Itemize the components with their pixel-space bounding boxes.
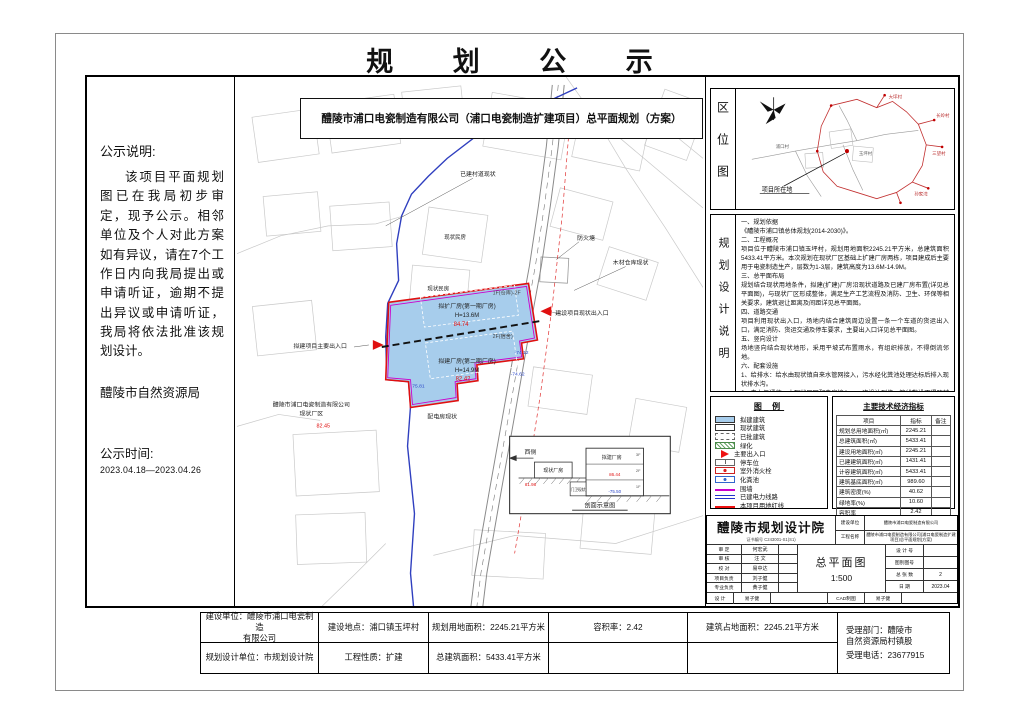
map-place-3: 长岭村 xyxy=(936,112,950,119)
signature-row: 审 定何宏武 xyxy=(707,545,797,555)
north-arrow-icon xyxy=(760,97,786,124)
cad-label: CAD制图 xyxy=(828,593,865,604)
footer-far: 容积率：2.42 xyxy=(549,613,688,643)
meta-row: 图别图号 xyxy=(886,557,957,569)
legend-item: 化粪池 xyxy=(715,475,823,484)
indicators-col-value: 指标 xyxy=(901,416,931,426)
section-inset: 西侧 现状厂房 81.98 拟建厂房 3F 2F 1F 86.44 -75.50… xyxy=(508,436,670,513)
map-roads xyxy=(752,106,918,197)
legend-swatch-proposed-building-icon xyxy=(715,416,735,423)
map-place-5: 孙家湾 xyxy=(914,190,928,197)
map-place-2: 大坪村 xyxy=(889,93,903,100)
drawing-name-cell: 总平面图 1:500 xyxy=(798,545,886,592)
entrance-arrow-icon xyxy=(540,306,551,316)
map-pointer-line xyxy=(784,153,845,186)
legend-swatch-red-line-icon xyxy=(715,506,735,508)
notice-heading: 公示说明: xyxy=(100,141,224,160)
section-proposed-building: 拟建厂房 xyxy=(601,454,621,461)
signature-row: 专业负责黄子健 xyxy=(707,583,797,592)
spot-elevation-2: -74.62 xyxy=(510,372,524,378)
map-pointer-label: 项目所在地 xyxy=(762,184,793,193)
map-dots xyxy=(816,94,943,204)
map-place-0: 浦口村 xyxy=(776,143,790,150)
notice-authority: 醴陵市自然资源局 xyxy=(100,382,224,401)
build-unit-label: 建设单位 xyxy=(836,516,865,530)
sheet-title: 规 划 公 示 xyxy=(55,40,964,79)
notice-time-range: 2023.04.18—2023.04.26 xyxy=(100,465,224,475)
footer-empty-1 xyxy=(549,643,688,673)
footer-accepting-dept: 受理部门：醴陵市 自然资源局村镇股 受理电话：23677915 xyxy=(838,613,949,673)
designer-value: 易子健 xyxy=(734,593,771,604)
notice-time-label: 公示时间: xyxy=(100,443,224,462)
legend-swatch-greenery-icon xyxy=(715,442,735,449)
footer-total-area: 总建筑面积：5433.41平方米 xyxy=(429,643,549,673)
legend-title: 图 例 xyxy=(715,401,823,412)
footer-design-unit: 规划设计单位：市规划设计院 xyxy=(201,643,319,673)
section-caption: 剖面示意图 xyxy=(584,502,615,510)
build-unit-value: 醴陵市浦口电瓷制造有限公司 xyxy=(865,516,957,530)
label-timber-warehouse: 木材仓库现状 xyxy=(612,259,648,267)
indicators-header-row: 项目 指标 备注 xyxy=(837,416,951,426)
section-floor2: 2F xyxy=(635,468,640,473)
design-institute-name: 醴陵市规划设计院 xyxy=(717,517,825,536)
cad-value: 易子健 xyxy=(865,593,902,604)
meta-row: 日 期2023.04 xyxy=(886,581,957,592)
table-row: 绿地率(%)10.60 xyxy=(837,497,951,507)
label-workshop2-floors: 2F(宿舍) xyxy=(492,332,512,340)
indicators-col-name: 项目 xyxy=(837,416,901,426)
table-row: 建设用地面积(㎡)2245.21 xyxy=(837,446,951,456)
label-fire-pond: 防火塘 xyxy=(577,234,595,242)
legend-swatch-power-line-icon xyxy=(715,495,735,499)
meta-row: 设 计 号 xyxy=(886,545,957,557)
label-main-entrance: 拟建项目主要出入口 xyxy=(293,342,346,350)
map-place-4: 三望村 xyxy=(932,150,946,156)
map-place-1: 玉坪村 xyxy=(859,150,873,157)
legend-swatch-fence-icon xyxy=(715,489,735,491)
legend-item: 主要出入口 xyxy=(715,449,823,458)
title-block-project-row: 工程名称 醴陵市浦口电瓷制造有限公司(浦口电瓷制造扩建项目)总平面规划(方案) xyxy=(836,531,957,545)
footer-nature: 工程性质：扩建 xyxy=(319,643,429,673)
legend-panel: 图 例 拟建建筑 现状建筑 已批建筑 绿化 主要出入口 停车位 室外消火栓 化粪… xyxy=(710,396,828,509)
project-name-value: 醴陵市浦口电瓷制造有限公司(浦口电瓷制造扩建项目)总平面规划(方案) xyxy=(865,531,957,545)
legend-swatch-existing-building-icon xyxy=(715,424,735,431)
section-floor3: 3F xyxy=(635,452,640,457)
indicators-panel: 主要技术经济指标 项目 指标 备注 规划总用地面积(㎡)2245.21 总建筑面… xyxy=(832,396,955,509)
site-boundary xyxy=(385,283,537,407)
site-plan-svg: 已建村道现状 现状民房 现状民房 防火塘 木材仓库现状 建设项目现状出入口 拟建… xyxy=(237,77,703,606)
project-name-label: 工程名称 xyxy=(836,531,865,545)
design-notes-panel: 规划设计说明 一、规划依据 《醴陵市浦口镇总体规划(2014-2030)》。 二… xyxy=(710,214,955,392)
meta-row: 总 张 数2 xyxy=(886,569,957,581)
label-workshop1-floors: 1F(仓库)-2F xyxy=(492,288,520,296)
table-row: 建筑基底面积(㎡)989.60 xyxy=(837,477,951,487)
label-workshop2-name: 拟建厂房(第二期厂房) xyxy=(438,357,495,365)
table-row: 计容建筑面积(㎡)5433.41 xyxy=(837,466,951,476)
spot-elevation-3: 75.81 xyxy=(412,384,425,390)
location-map-panel-title-strip: 区位图 xyxy=(711,89,736,209)
footer-build-unit: 建设单位：醴陵市浦口电瓷制造 有限公司 xyxy=(201,613,319,643)
indicators-col-note: 备注 xyxy=(931,416,950,426)
design-notes-panel-title: 规划设计说明 xyxy=(715,237,731,369)
design-notes-title-strip: 规划设计说明 xyxy=(711,215,736,391)
indicators-title: 主要技术经济指标 xyxy=(836,401,951,412)
title-block-bottom-row: 设 计 易子健 CAD制图 易子健 xyxy=(707,593,957,604)
label-house-1: 现状民房 xyxy=(444,233,466,241)
legend-item: 绿化 xyxy=(715,441,823,450)
section-guard: 门卫现状 xyxy=(570,487,585,492)
legend-item: 拟建建筑 xyxy=(715,415,823,424)
location-map-panel: 区位图 xyxy=(710,88,955,210)
legend-swatch-septic-tank-icon xyxy=(715,476,735,483)
section-elev-top: 86.44 xyxy=(609,472,621,477)
footer-location: 建设地点：浦口镇玉坪村 xyxy=(319,613,429,643)
section-elev-existing: 81.98 xyxy=(524,482,536,487)
legend-item: 室外消火栓 xyxy=(715,467,823,476)
title-block-build-unit-row: 建设单位 醴陵市浦口电瓷制造有限公司 xyxy=(836,516,957,531)
legend-swatch-entrance-arrow-icon xyxy=(721,450,729,458)
label-workshop2-height: H=14.9M xyxy=(454,368,478,374)
label-house-2: 现状民房 xyxy=(427,284,449,292)
legend-item: 停车位 xyxy=(715,458,823,467)
signature-row: 校 对易中达 xyxy=(707,564,797,574)
entrance-arrow-icon xyxy=(372,340,383,350)
legend-item: 围墙 xyxy=(715,484,823,493)
map-boundary xyxy=(817,95,942,203)
footer-dept-text: 受理部门：醴陵市 自然资源局村镇股 xyxy=(846,625,912,647)
table-row: 规划总用地面积(㎡)2245.21 xyxy=(837,426,951,436)
table-row: 已建建筑面积(㎡)1431.41 xyxy=(837,456,951,466)
spot-elevation-1: -74.12 xyxy=(514,350,528,356)
table-row: 建筑密度(%)40.62 xyxy=(837,487,951,497)
label-workshop1-height: H=13.6M xyxy=(454,313,478,319)
section-existing-building: 现状厂房 xyxy=(543,467,563,474)
footer-land-area: 规划用地面积：2245.21平方米 xyxy=(429,613,549,643)
location-map-svg: 项目所在地 浦口村 玉坪村 大坪村 长岭村 三望村 孙家湾 xyxy=(736,89,954,209)
title-block: 醴陵市规划设计院 证书编号 C243001-S1(S1) 建设单位 醴陵市浦口电… xyxy=(706,515,958,604)
design-institute: 醴陵市规划设计院 证书编号 C243001-S1(S1) xyxy=(707,516,836,544)
drawing-scale: 1:500 xyxy=(831,573,852,583)
legend-item: 本项目用地红线 xyxy=(715,501,823,510)
footer-empty-2 xyxy=(688,643,838,673)
designer-label: 设 计 xyxy=(707,593,734,604)
footer-footprint: 建筑占地面积：2245.21平方米 xyxy=(688,613,838,643)
label-workshop1-name: 拟扩厂房(第一期厂房) xyxy=(438,302,495,310)
design-notes-text: 一、规划依据 《醴陵市浦口镇总体规划(2014-2030)》。 二、工程概况 项… xyxy=(736,215,954,391)
location-map-body: 项目所在地 浦口村 玉坪村 大坪村 长岭村 三望村 孙家湾 xyxy=(736,89,954,209)
legend-item: 现状建筑 xyxy=(715,424,823,433)
table-row: 总建筑面积(㎡)5433.41 xyxy=(837,436,951,446)
location-map-panel-title: 区位图 xyxy=(715,101,732,197)
legend-swatch-hydrant-icon xyxy=(715,467,735,474)
label-existing-factory-1: 醴陵市浦口电瓷制造有限公司 xyxy=(272,401,349,409)
notice-body: 该项目平面规划图已在我局初步审定，现予公示。相邻单位及个人对此方案如有异议，请在… xyxy=(100,168,224,362)
footer-phone: 受理电话：23677915 xyxy=(846,650,924,661)
legend-item: 已建电力线路 xyxy=(715,492,823,501)
label-workshop2-elev: 82.42 xyxy=(455,377,470,383)
label-workshop1-elev: 84.74 xyxy=(453,322,469,328)
section-floor1: 1F xyxy=(635,484,640,489)
label-power-room: 配电房现状 xyxy=(427,412,457,420)
site-plan-area: 已建村道现状 现状民房 现状民房 防火塘 木材仓库现状 建设项目现状出入口 拟建… xyxy=(237,77,703,606)
drawing-name: 总平面图 xyxy=(816,554,868,570)
label-road-status: 已建村道现状 xyxy=(460,170,496,178)
legend-swatch-parking-icon xyxy=(715,459,735,466)
legend-label: 本项目用地红线 xyxy=(740,501,784,510)
design-institute-certificate: 证书编号 C243001-S1(S1) xyxy=(746,537,795,543)
legend-item: 已批建筑 xyxy=(715,432,823,441)
drawing-title-box: 醴陵市浦口电瓷制造有限公司（浦口电瓷制造扩建项目）总平面规划（方案） xyxy=(300,98,703,139)
label-existing-entrance: 建设项目现状出入口 xyxy=(555,309,608,317)
section-elev-bottom: -75.50 xyxy=(608,489,621,494)
section-west-label: 西侧 xyxy=(524,448,536,456)
legend-swatch-approved-building-icon xyxy=(715,433,735,440)
label-existing-factory-elev: 82.45 xyxy=(316,423,330,429)
indicators-table: 项目 指标 备注 规划总用地面积(㎡)2245.21 总建筑面积(㎡)5433.… xyxy=(836,415,951,518)
fire-pond-outline xyxy=(539,257,568,283)
label-existing-factory-2: 现状厂区 xyxy=(299,409,323,417)
notice-column: 公示说明: 该项目平面规划图已在我局初步审定，现予公示。相邻单位及个人对此方案如… xyxy=(85,75,235,608)
footer-table: 建设单位：醴陵市浦口电瓷制造 有限公司 建设地点：浦口镇玉坪村 规划用地面积：2… xyxy=(200,612,950,674)
drawing-title: 醴陵市浦口电瓷制造有限公司（浦口电瓷制造扩建项目）总平面规划（方案） xyxy=(321,111,681,126)
signature-row: 审 核汪 文 xyxy=(707,555,797,565)
signature-row: 项目负责刘子健 xyxy=(707,574,797,584)
